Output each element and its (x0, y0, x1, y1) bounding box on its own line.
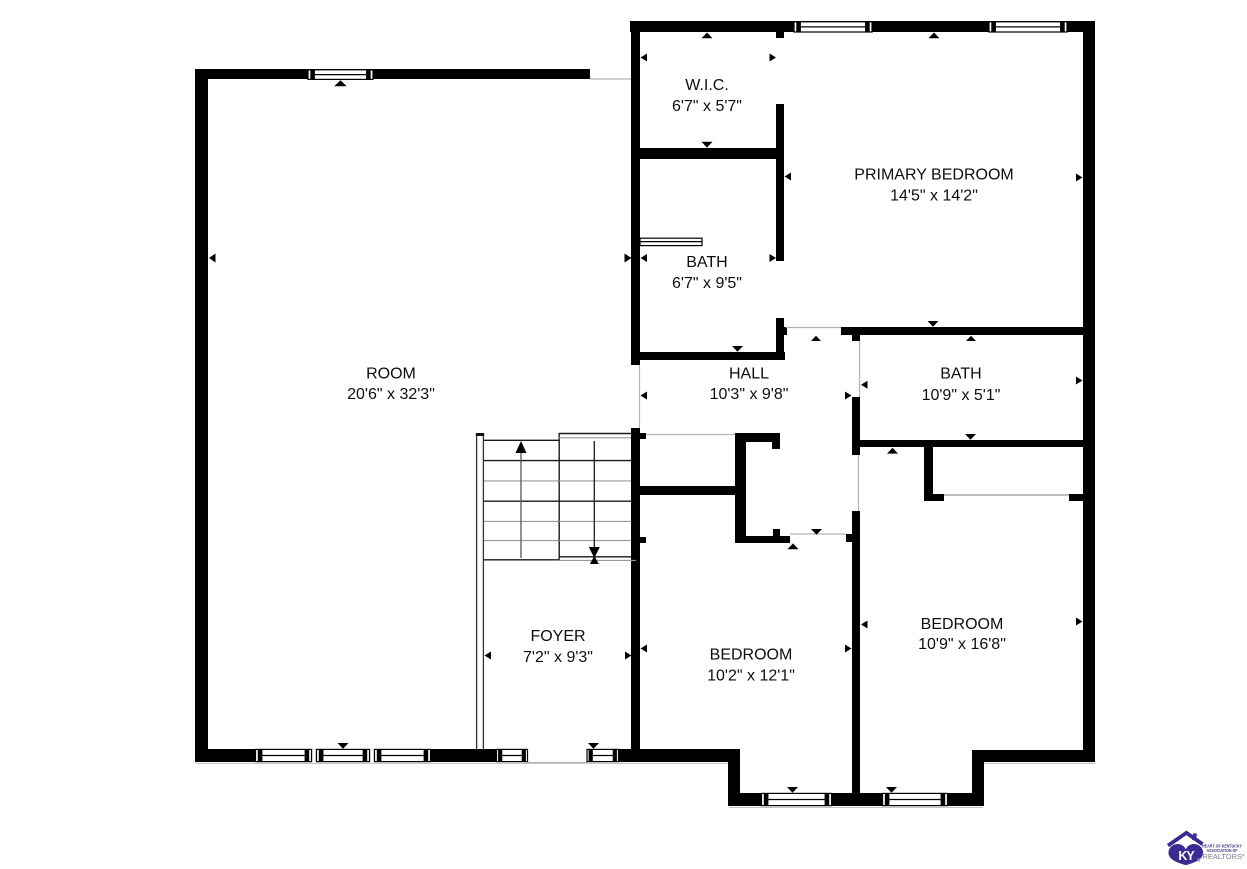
svg-text:HALL: HALL (729, 366, 769, 383)
svg-text:W.I.C.: W.I.C. (685, 77, 729, 94)
svg-text:REALTORS: REALTORS (1203, 852, 1243, 861)
svg-text:10'9" x 5'1": 10'9" x 5'1" (922, 387, 1001, 404)
svg-text:6'7" x 5'7": 6'7" x 5'7" (672, 98, 742, 115)
svg-text:FOYER: FOYER (530, 628, 585, 645)
svg-text:KY: KY (1178, 849, 1195, 863)
svg-text:14'5" x 14'2": 14'5" x 14'2" (890, 187, 978, 204)
svg-text:BEDROOM: BEDROOM (921, 616, 1004, 633)
svg-text:BATH: BATH (940, 366, 981, 383)
svg-text:ROOM: ROOM (366, 366, 416, 383)
svg-text:20'6" x 32'3": 20'6" x 32'3" (347, 386, 435, 403)
svg-text:10'2" x 12'1": 10'2" x 12'1" (707, 667, 795, 684)
svg-text:BATH: BATH (686, 254, 727, 271)
svg-text:PRIMARY BEDROOM: PRIMARY BEDROOM (854, 167, 1013, 184)
svg-text:7'2" x 9'3": 7'2" x 9'3" (523, 649, 593, 666)
svg-text:BEDROOM: BEDROOM (710, 647, 793, 664)
svg-text:10'3" x 9'8": 10'3" x 9'8" (710, 386, 789, 403)
svg-text:6'7" x 9'5": 6'7" x 9'5" (672, 275, 742, 292)
svg-text:10'9" x 16'8": 10'9" x 16'8" (918, 636, 1006, 653)
